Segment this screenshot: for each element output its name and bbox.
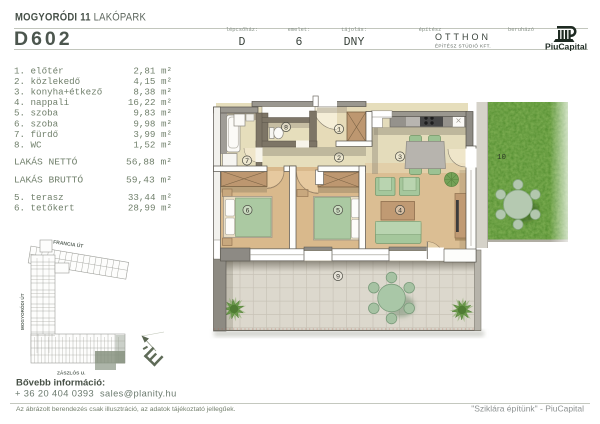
svg-text:+ 36 20 404 0393: + 36 20 404 0393: [15, 389, 94, 399]
svg-text:4: 4: [398, 207, 402, 215]
svg-text:6. tetőkert: 6. tetőkert: [14, 202, 75, 213]
svg-text:7. fürdő: 7. fürdő: [14, 129, 58, 140]
svg-text:4,15 m²: 4,15 m²: [133, 76, 172, 87]
svg-text:2. közlekedő: 2. közlekedő: [14, 76, 80, 87]
svg-text:3: 3: [398, 154, 402, 162]
svg-text:8: 8: [284, 124, 288, 132]
svg-text:1. előtér: 1. előtér: [14, 66, 64, 77]
svg-text:28,99 m²: 28,99 m²: [128, 202, 172, 213]
svg-text:8. WC: 8. WC: [14, 139, 42, 150]
svg-text:9,83 m²: 9,83 m²: [133, 108, 172, 119]
svg-text:ÉPÍTÉSZ STÚDIÓ KFT.: ÉPÍTÉSZ STÚDIÓ KFT.: [435, 43, 491, 49]
svg-text:emelet:: emelet:: [288, 27, 311, 33]
svg-text:1: 1: [337, 126, 341, 134]
svg-text:5: 5: [336, 207, 340, 215]
svg-text:"Sziklára építünk" - PiuCapita: "Sziklára építünk" - PiuCapital: [471, 404, 584, 414]
svg-text:3,99 m²: 3,99 m²: [133, 129, 172, 140]
svg-text:7: 7: [245, 158, 249, 166]
svg-text:1,52 m²: 1,52 m²: [133, 139, 172, 150]
svg-text:tájolás:: tájolás:: [341, 27, 367, 33]
svg-text:6: 6: [245, 207, 249, 215]
svg-text:4. nappali: 4. nappali: [14, 97, 70, 108]
svg-text:56,88 m²: 56,88 m²: [126, 157, 172, 168]
svg-text:LAKÁS NETTÓ: LAKÁS NETTÓ: [14, 157, 78, 168]
svg-text:Az ábrázolt berendezés csak il: Az ábrázolt berendezés csak illusztráció…: [16, 406, 236, 413]
svg-text:10: 10: [497, 154, 507, 162]
svg-text:MOGYORÓDI ÚT: MOGYORÓDI ÚT: [18, 293, 25, 330]
svg-text:2,81 m²: 2,81 m²: [133, 66, 172, 77]
svg-text:9,98 m²: 9,98 m²: [133, 118, 172, 129]
svg-text:D: D: [239, 36, 246, 49]
svg-text:3. konyha+étkező: 3. konyha+étkező: [14, 87, 102, 98]
svg-text:OTTHON: OTTHON: [435, 32, 491, 42]
svg-text:Bővebb információ:: Bővebb információ:: [16, 378, 105, 389]
svg-text:6: 6: [296, 36, 303, 49]
svg-text:LAKÁS BRUTTÓ: LAKÁS BRUTTÓ: [14, 175, 83, 186]
svg-text:DNY: DNY: [344, 36, 365, 49]
svg-text:59,43 m²: 59,43 m²: [126, 175, 172, 186]
svg-text:8,38 m²: 8,38 m²: [133, 87, 172, 98]
svg-text:16,22 m²: 16,22 m²: [128, 97, 172, 108]
svg-text:6. szoba: 6. szoba: [14, 118, 59, 129]
svg-text:lépcsőház:: lépcsőház:: [226, 27, 258, 33]
svg-text:9: 9: [336, 273, 340, 281]
svg-text:33,44 m²: 33,44 m²: [128, 192, 172, 203]
svg-text:sales@planity.hu: sales@planity.hu: [100, 389, 177, 399]
svg-text:MOGYORÓDI 11 LAKÓPARK: MOGYORÓDI 11 LAKÓPARK: [15, 10, 146, 24]
svg-text:2: 2: [337, 155, 341, 163]
svg-text:5. szoba: 5. szoba: [14, 108, 59, 119]
svg-text:D602: D602: [14, 28, 73, 50]
svg-text:PiuCapital: PiuCapital: [545, 42, 587, 52]
svg-text:5. terasz: 5. terasz: [14, 192, 64, 203]
svg-text:beruházó: beruházó: [508, 27, 534, 33]
